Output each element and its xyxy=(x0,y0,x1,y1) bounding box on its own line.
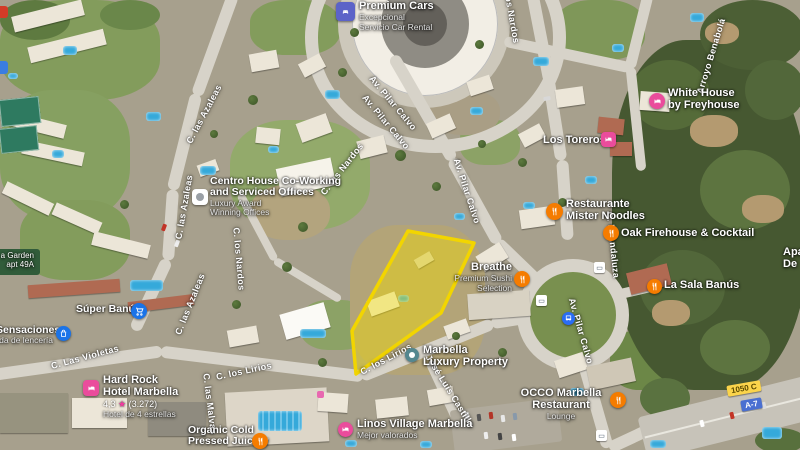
poi-organic-juicery[interactable]: Organic Cold Pressed Juicery xyxy=(188,425,250,448)
star-icon: ★ xyxy=(118,399,126,409)
poi-hard-rock-hotel[interactable]: Hard Rock Hotel Marbella 4,3 ★ (3.272) H… xyxy=(103,375,178,420)
poi-premium-cars[interactable]: Premium Cars Excepcional Servicio Car Re… xyxy=(359,1,434,32)
poi-super-banus[interactable]: Súper Banús xyxy=(76,304,128,315)
bus-stop-icon[interactable]: ▭ xyxy=(536,295,547,306)
poi-title: Pressed Juicery xyxy=(188,436,250,447)
clipped-poi-icon xyxy=(0,6,8,18)
realty-icon[interactable] xyxy=(405,348,419,362)
poi-title: Luxury Property xyxy=(423,357,508,369)
poi-title: Restaurant xyxy=(515,400,607,412)
poi-mister-noodles[interactable]: Restaurante Mister Noodles xyxy=(566,199,645,223)
poi-title: by Freyhouse xyxy=(668,100,740,112)
restaurant-icon[interactable] xyxy=(514,271,530,287)
clipped-poi-icon xyxy=(0,61,8,74)
poi-title: Hotel Marbella xyxy=(103,387,178,399)
poi-subtitle: Tienda de lencería xyxy=(0,336,53,346)
poi-la-sala-banus[interactable]: La Sala Banús xyxy=(664,280,739,292)
restaurant-icon[interactable] xyxy=(546,203,563,220)
poi-title: De xyxy=(783,259,800,271)
satellite-map[interactable]: Av. Pilar Calvo Av. Pilar Calvo Av. Pila… xyxy=(0,0,800,450)
poi-title: and Serviced Offices xyxy=(210,187,341,198)
restaurant-icon[interactable] xyxy=(252,433,268,449)
poi-los-toreros[interactable]: Los Toreros xyxy=(543,135,598,147)
lodging-icon[interactable] xyxy=(83,380,99,396)
poi-title: a Garden xyxy=(0,251,34,260)
lodging-icon[interactable] xyxy=(338,422,353,437)
lodging-icon[interactable] xyxy=(649,93,665,109)
poi-title: Mister Noodles xyxy=(566,211,645,223)
poi-subtitle: Selection xyxy=(442,284,512,294)
car-rental-icon[interactable] xyxy=(336,2,355,21)
poi-oak-firehouse[interactable]: Oak Firehouse & Cocktail xyxy=(621,228,754,240)
shopping-bag-icon[interactable] xyxy=(56,326,71,341)
poi-occo-marbella[interactable]: OCCO Marbella Restaurant Lounge xyxy=(515,388,607,422)
transit-station-icon[interactable] xyxy=(562,312,575,325)
bus-stop-icon[interactable]: ▭ xyxy=(594,262,605,273)
poi-subtitle: Hotel de 4 estrellas xyxy=(103,410,178,420)
poi-marbella-luxury-property[interactable]: Marbella Luxury Property xyxy=(423,345,508,369)
shopping-cart-icon[interactable] xyxy=(131,303,147,319)
restaurant-icon[interactable] xyxy=(647,279,662,294)
poi-las-sensaciones[interactable]: Las Sensaciones Tienda de lencería xyxy=(0,325,53,346)
poi-subtitle: Servicio Car Rental xyxy=(359,23,434,33)
poi-subtitle: Winning Offices xyxy=(210,208,341,218)
poi-subtitle: Mejor valorados xyxy=(357,431,472,441)
poi-garden-apartments[interactable]: a Garden apt 49A xyxy=(0,249,40,275)
minor-poi-dot xyxy=(317,391,324,398)
poi-subtitle: Lounge xyxy=(515,412,607,422)
restaurant-icon[interactable] xyxy=(603,225,619,241)
office-icon[interactable] xyxy=(192,189,208,205)
poi-apartments-edge[interactable]: Apartamentos De xyxy=(783,247,800,271)
poi-breathe[interactable]: Breathe Premium Sushi Selection xyxy=(442,262,512,293)
poi-white-house[interactable]: White House by Freyhouse xyxy=(668,88,740,112)
poi-title: Súper Banús xyxy=(76,304,128,315)
poi-linos-village[interactable]: Linos Village Marbella Mejor valorados xyxy=(357,419,472,441)
poi-centro-house[interactable]: Centro House Co-Working and Serviced Off… xyxy=(210,176,341,218)
lodging-icon[interactable] xyxy=(601,132,616,147)
poi-title: La Sala Banús xyxy=(664,280,739,292)
poi-title: Los Toreros xyxy=(543,135,598,147)
poi-title: Oak Firehouse & Cocktail xyxy=(621,228,754,240)
restaurant-icon[interactable] xyxy=(610,392,626,408)
bus-stop-icon[interactable]: ▭ xyxy=(596,430,607,441)
poi-subtitle: apt 49A xyxy=(0,260,34,269)
